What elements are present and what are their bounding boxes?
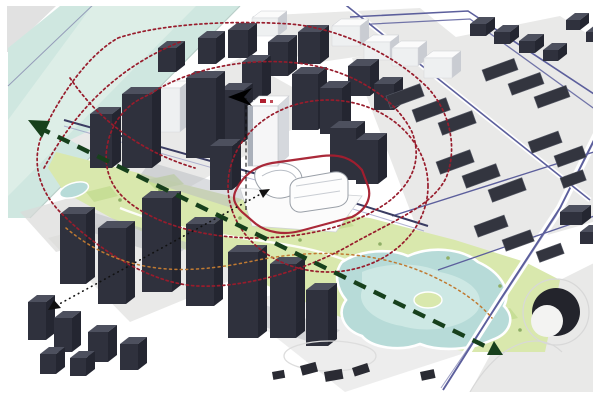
building-dark[interactable] [54, 311, 81, 352]
building-dark[interactable] [566, 13, 589, 30]
building-dark[interactable] [120, 337, 147, 370]
podium-shell-east[interactable] [290, 172, 348, 212]
building-shape [378, 133, 387, 184]
building-shape [70, 358, 86, 376]
building-shape [198, 38, 216, 64]
building-shape [470, 24, 486, 36]
building-shape [172, 191, 181, 292]
building-white[interactable] [424, 51, 461, 78]
slab-building[interactable] [536, 243, 564, 262]
building-shape [228, 252, 258, 338]
axonometric-diagram [0, 0, 600, 400]
building-shape [292, 74, 318, 130]
building-shape [122, 94, 152, 168]
building-shape [228, 30, 248, 58]
tower-roof-marker-2 [270, 100, 273, 103]
building-dark[interactable] [198, 31, 225, 64]
building-dark[interactable] [28, 295, 55, 340]
building-shape [566, 20, 580, 30]
building-shape [210, 146, 232, 190]
building-dark[interactable] [40, 347, 65, 374]
building-dark[interactable] [306, 283, 337, 346]
plaza-structure [300, 362, 318, 376]
building-shape [214, 217, 223, 306]
building-shape [424, 58, 452, 78]
building-white[interactable] [332, 19, 369, 46]
building-shape [98, 228, 126, 304]
building-dark[interactable] [70, 351, 95, 376]
building-shape [543, 50, 558, 61]
building-white[interactable] [160, 81, 189, 132]
plaza-structure [420, 369, 436, 381]
tower-shade-strip [248, 106, 253, 166]
building-shape [120, 344, 138, 370]
building-shape [72, 311, 81, 352]
building-shape [160, 88, 180, 132]
building-shape [328, 283, 337, 346]
building-shape [288, 35, 297, 76]
building-shape [40, 354, 56, 374]
building-dark[interactable] [268, 35, 297, 76]
tower-roof-marker [260, 99, 266, 103]
building-shape [306, 290, 328, 346]
building-shape [186, 224, 214, 306]
building-shape [28, 302, 46, 340]
tower-side [278, 96, 289, 166]
building-shape [86, 207, 95, 284]
building-shape [158, 48, 176, 72]
building-shape [332, 26, 360, 46]
building-shape [54, 318, 72, 352]
building-dark[interactable] [158, 41, 185, 72]
pond-island [414, 292, 442, 308]
building-dark[interactable] [228, 23, 257, 58]
building-shape [270, 264, 296, 338]
building-shape [519, 41, 535, 53]
building-shape [152, 87, 161, 168]
building-shape [494, 32, 510, 44]
building-shape [392, 48, 418, 66]
building-shape [560, 212, 582, 225]
building-shape [298, 32, 320, 64]
building-dark[interactable] [186, 217, 223, 306]
building-shape [356, 140, 378, 184]
plaza-structure [272, 370, 285, 380]
building-shape [112, 107, 121, 168]
building-dark[interactable] [270, 257, 305, 338]
building-dark[interactable] [356, 133, 387, 184]
building-dark[interactable] [210, 139, 241, 190]
diagram-canvas [0, 0, 600, 400]
